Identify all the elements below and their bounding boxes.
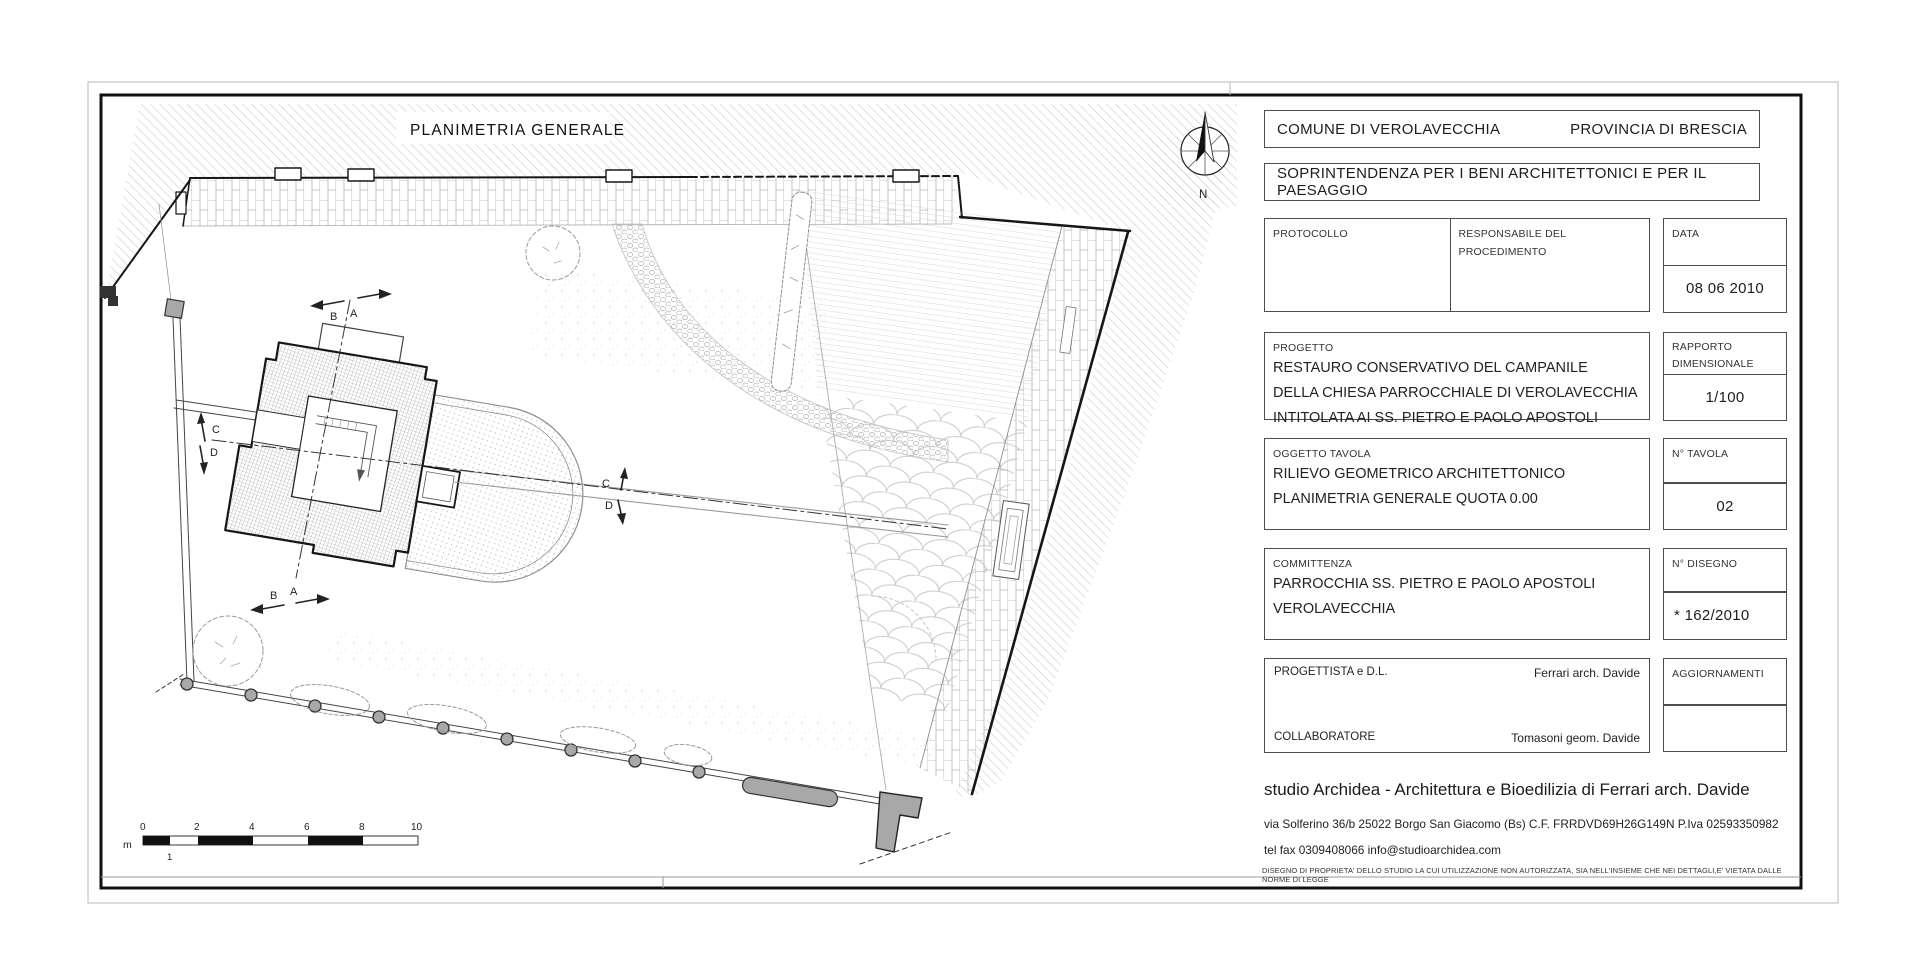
studio-contact: tel fax 0309408066 info@studioarchidea.c… bbox=[1264, 843, 1798, 857]
progettista-box: PROGETTISTA e D.L. Ferrari arch. Davide … bbox=[1264, 658, 1650, 753]
progetto-line: RESTAURO CONSERVATIVO DEL CAMPANILE bbox=[1273, 356, 1641, 381]
soprintendenza-box: SOPRINTENDENZA PER I BENI ARCHITETTONICI… bbox=[1264, 163, 1760, 201]
committenza-label: COMMITTENZA bbox=[1273, 558, 1352, 570]
oggetto-box: OGGETTO TAVOLA RILIEVO GEOMETRICO ARCHIT… bbox=[1264, 438, 1650, 530]
rapporto-value-box: 1/100 bbox=[1663, 374, 1787, 421]
responsabile-label: RESPONSABILE DEL PROCEDIMENTO bbox=[1459, 228, 1566, 258]
disegno-value-box: * 162/2010 bbox=[1663, 592, 1787, 640]
section-label-b2: B bbox=[270, 590, 277, 602]
gravel-area bbox=[325, 630, 940, 768]
section-label-a2: A bbox=[290, 586, 298, 598]
rapporto-label-box: RAPPORTO DIMENSIONALE bbox=[1663, 332, 1787, 375]
svg-text:10: 10 bbox=[411, 822, 423, 833]
scale-bar: m 0 2 4 6 8 10 1 bbox=[123, 822, 423, 863]
rapporto-label: RAPPORTO bbox=[1672, 341, 1732, 353]
scale-half-tick: 1 bbox=[167, 852, 172, 863]
oggetto-line: PLANIMETRIA GENERALE QUOTA 0.00 bbox=[1273, 487, 1641, 512]
collaboratore-value: Tomasoni geom. Davide bbox=[1511, 731, 1640, 745]
progetto-line: INTITOLATA AI SS. PIETRO E PAOLO APOSTOL… bbox=[1273, 406, 1641, 431]
provincia-label: PROVINCIA DI BRESCIA bbox=[1570, 121, 1747, 138]
studio-address: via Solferino 36/b 25022 Borgo San Giaco… bbox=[1264, 817, 1798, 831]
progetto-label: PROGETTO bbox=[1273, 342, 1333, 354]
tavola-label-box: N° TAVOLA bbox=[1663, 438, 1787, 483]
oggetto-line: RILIEVO GEOMETRICO ARCHITETTONICO bbox=[1273, 462, 1641, 487]
soprintendenza-label: SOPRINTENDENZA PER I BENI ARCHITETTONICI… bbox=[1277, 165, 1747, 199]
section-label-a: A bbox=[350, 308, 358, 320]
bush bbox=[663, 741, 714, 768]
svg-text:6: 6 bbox=[304, 822, 310, 833]
rapporto-value: 1/100 bbox=[1705, 389, 1744, 406]
progetto-box: PROGETTO RESTAURO CONSERVATIVO DEL CAMPA… bbox=[1264, 332, 1650, 420]
plan-title: PLANIMETRIA GENERALE bbox=[410, 122, 625, 139]
svg-text:4: 4 bbox=[249, 822, 255, 833]
section-label-b: B bbox=[330, 311, 337, 323]
data-label: DATA bbox=[1672, 228, 1699, 240]
aggiornamenti-label: AGGIORNAMENTI bbox=[1672, 668, 1764, 680]
tower-room bbox=[292, 396, 398, 511]
protocollo-box: PROTOCOLLO bbox=[1264, 218, 1451, 312]
disegno-label-box: N° DISEGNO bbox=[1663, 548, 1787, 592]
progetto-line: DELLA CHIESA PARROCCHIALE DI VEROLAVECCH… bbox=[1273, 381, 1641, 406]
progettista-value: Ferrari arch. Davide bbox=[1534, 666, 1640, 680]
data-value: 08 06 2010 bbox=[1686, 280, 1764, 297]
committenza-line: VEROLAVECCHIA bbox=[1273, 597, 1641, 622]
section-label-c: C bbox=[212, 424, 220, 436]
section-label-d: D bbox=[210, 447, 218, 459]
svg-text:2: 2 bbox=[194, 822, 200, 833]
aggiornamenti-label-box: AGGIORNAMENTI bbox=[1663, 658, 1787, 705]
progettista-label: PROGETTISTA e D.L. bbox=[1274, 666, 1388, 680]
disegno-value: * 162/2010 bbox=[1674, 607, 1750, 624]
scale-unit: m bbox=[123, 839, 132, 851]
svg-text:8: 8 bbox=[359, 822, 365, 833]
committenza-box: COMMITTENZA PARROCCHIA SS. PIETRO E PAOL… bbox=[1264, 548, 1650, 640]
site-plan: C D C D B A B A bbox=[100, 104, 1237, 864]
copyright-disclaimer: DISEGNO DI PROPRIETA' DELLO STUDIO LA CU… bbox=[1262, 866, 1802, 884]
data-label-box: DATA bbox=[1663, 218, 1787, 266]
responsabile-box: RESPONSABILE DEL PROCEDIMENTO bbox=[1450, 218, 1650, 312]
chimney bbox=[348, 169, 374, 181]
chimney bbox=[893, 170, 919, 182]
data-value-box: 08 06 2010 bbox=[1663, 265, 1787, 313]
compass-north-label: N bbox=[1199, 189, 1207, 201]
gate-wall bbox=[741, 776, 838, 808]
east-porch bbox=[417, 466, 460, 508]
disegno-label: N° DISEGNO bbox=[1672, 558, 1737, 570]
chimney bbox=[275, 168, 301, 180]
oggetto-label: OGGETTO TAVOLA bbox=[1273, 448, 1371, 460]
svg-text:0: 0 bbox=[140, 822, 146, 833]
tavola-value-box: 02 bbox=[1663, 483, 1787, 530]
comune-label: COMUNE DI VEROLAVECCHIA bbox=[1277, 121, 1500, 138]
tree bbox=[193, 616, 263, 686]
studio-name: studio Archidea - Architettura e Bioedil… bbox=[1264, 780, 1798, 800]
chimney bbox=[606, 170, 632, 182]
committenza-line: PARROCCHIA SS. PIETRO E PAOLO APOSTOLI bbox=[1273, 572, 1641, 597]
section-label-d2: D bbox=[605, 500, 613, 512]
collaboratore-label: COLLABORATORE bbox=[1274, 731, 1375, 745]
aggiornamenti-empty-box bbox=[1663, 705, 1787, 752]
protocollo-label: PROTOCOLLO bbox=[1273, 228, 1348, 240]
tavola-label: N° TAVOLA bbox=[1672, 448, 1728, 460]
tavola-value: 02 bbox=[1716, 498, 1733, 515]
header-box: COMUNE DI VEROLAVECCHIA PROVINCIA DI BRE… bbox=[1264, 110, 1760, 148]
section-label-c2: C bbox=[602, 478, 610, 490]
corner-pier bbox=[876, 792, 922, 852]
